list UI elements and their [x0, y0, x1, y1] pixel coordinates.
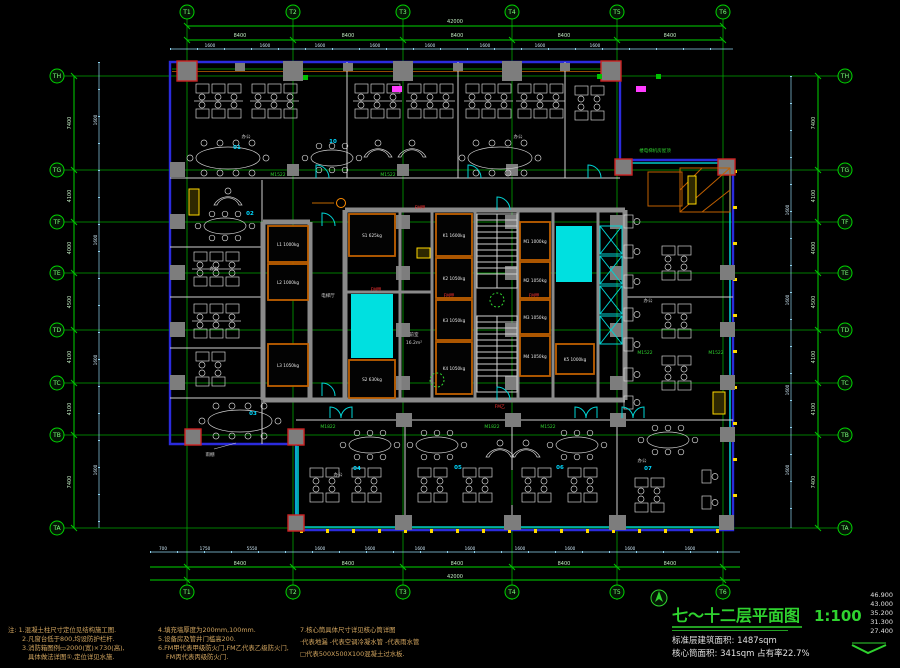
elevator-label: S2 630kg	[362, 377, 382, 382]
dim-total: 42000	[447, 574, 463, 580]
dim-win: 1600	[260, 43, 271, 48]
grid-label: TA	[52, 525, 61, 532]
office-label: 办公	[514, 133, 523, 140]
elevator-label: K1 1600kg	[443, 233, 466, 238]
elevation-value: 27.400	[870, 627, 893, 635]
dim-bay: 8400	[342, 33, 355, 39]
door-tag: M1522	[708, 350, 723, 356]
room-number: 06	[556, 465, 564, 471]
grid-label: T6	[718, 9, 727, 16]
machine-room-roof: 楼电梯机房屋顶	[639, 147, 730, 212]
dim-win: 1600	[785, 204, 790, 215]
grid-label: TB	[840, 432, 849, 439]
office-label: 办公	[210, 265, 219, 272]
elevator-label: S1 625kg	[362, 233, 382, 238]
dim-right: 4500	[811, 296, 817, 309]
dim-win: 1600	[785, 384, 790, 395]
elevator-label: M1 1000kg	[523, 239, 547, 244]
elevator-label: L2 1000kg	[277, 280, 299, 285]
dim-bay: 8400	[451, 33, 464, 39]
dim-win: 1600	[480, 43, 491, 48]
fire-hydrant-cabinet	[417, 248, 430, 258]
fire-door-label: FM乙	[495, 403, 506, 410]
note-line: 注: 1.混凝土柱尺寸定位见结构施工图.	[8, 625, 116, 634]
dim-bay: 8400	[342, 561, 355, 567]
cad-floor-plan: T1 T2 T3 T4 T5 T6 T1 T2 T3 T4 T5 T6 TH T…	[0, 0, 900, 668]
window-tag	[656, 74, 661, 79]
room-number: 02	[246, 211, 254, 217]
dim-right: 4100	[811, 190, 817, 203]
dimensions-left: 7400 4100 4000 4500 4100 4100 7400 1600 …	[67, 62, 99, 531]
dim-total: 42000	[447, 19, 463, 25]
office-label: 办公	[242, 133, 251, 140]
grid-label: T5	[612, 9, 621, 16]
note-line: FM丙代表丙级防火门.	[166, 652, 228, 661]
dim-left: 4100	[67, 403, 73, 416]
grid-label: TE	[52, 270, 61, 277]
dim-win: 1600	[93, 464, 98, 475]
dim-right: 4100	[811, 351, 817, 364]
elevation-value: 46.900	[870, 591, 893, 599]
elevator-label: K4 1050kg	[443, 366, 466, 371]
grid-label: T2	[288, 9, 297, 16]
dim-left: 4000	[67, 242, 73, 255]
office-label: 办公	[638, 457, 647, 464]
dim-win: 1600	[365, 546, 376, 551]
dim-seg: 5550	[247, 546, 258, 551]
dim-bay: 8400	[451, 561, 464, 567]
dim-win: 1600	[785, 464, 790, 475]
lobby-label: 电梯厅	[321, 292, 335, 299]
elevator-label: K5 1000kg	[564, 357, 587, 362]
dim-bay: 8400	[234, 561, 247, 567]
dim-win: 1600	[785, 294, 790, 305]
room-number: 03	[249, 411, 257, 417]
door-arc	[322, 383, 335, 396]
dim-win: 1600	[515, 546, 526, 551]
grid-label: TG	[840, 167, 850, 174]
door-arc	[322, 213, 335, 226]
room-number: 01	[233, 145, 241, 151]
door-tag: M1522	[380, 172, 395, 178]
grid-label: TB	[52, 432, 61, 439]
dim-bay: 8400	[664, 33, 677, 39]
note-line: 6.FM甲代表甲级防火门,FM乙代表乙级防火门,	[158, 643, 289, 652]
grid-label: TF	[840, 219, 849, 226]
note-line: 5.设备房及管井门槛高200.	[158, 634, 236, 643]
door-tag: M1522	[637, 350, 652, 356]
note-line: 4.填充墙厚度为200mm,100mm.	[158, 625, 256, 634]
elevator-label: L1 1000kg	[277, 242, 299, 247]
grid-label: T3	[398, 9, 407, 16]
dim-win: 1600	[590, 43, 601, 48]
area-line: 标准层建筑面积: 1487sqm	[672, 635, 777, 646]
door-tag: M1522	[270, 172, 285, 178]
grid-label: TF	[52, 219, 61, 226]
elevator-label: K2 1050kg	[443, 276, 466, 281]
vent-circle	[490, 293, 504, 307]
magenta-tag	[392, 86, 402, 92]
elevator-label: K3 1050kg	[443, 318, 466, 323]
grid-label: TC	[840, 380, 849, 387]
grid-label: TG	[52, 167, 62, 174]
area-line: 核心筒面积: 341sqm 占有率22.7%	[672, 648, 810, 659]
dimensions-top: 42000 8400 8400 8400 8400 8400 1600 1600…	[170, 19, 733, 49]
elevator-label: M2 1050kg	[523, 278, 547, 283]
elevation-value: 31.300	[870, 618, 893, 626]
note-line: 3.消防箱图例▭2000(宽)×730(高),	[22, 643, 125, 652]
door-tag: M1822	[320, 424, 335, 430]
dim-win: 1600	[415, 546, 426, 551]
conference-table	[187, 140, 269, 176]
front-room-label: 前室	[410, 331, 419, 338]
door-tag: M1822	[484, 424, 499, 430]
dim-win: 1600	[425, 43, 436, 48]
dim-seg: 1750	[200, 546, 211, 551]
notes: 注: 1.混凝土柱尺寸定位见结构施工图. 2.凡窗台低于800,均设防护栏杆. …	[8, 625, 419, 661]
note-line: ·代表地漏 -代表空调冷凝水管 -代表雨水管	[300, 637, 419, 646]
dim-bay: 8400	[558, 33, 571, 39]
dim-left: 4500	[67, 296, 73, 309]
elevator-label: M4 1050kg	[523, 354, 547, 359]
dim-win: 1600	[465, 546, 476, 551]
fire-hydrant-cabinet	[189, 189, 199, 215]
grid-bubbles-left: TH TG TF TE TD TC TB TA	[50, 69, 64, 535]
plan-canvas: T1 T2 T3 T4 T5 T6 T1 T2 T3 T4 T5 T6 TH T…	[0, 0, 900, 668]
fire-elevator-shaft	[351, 294, 393, 358]
room-number: 07	[644, 466, 652, 472]
grid-label: TH	[840, 73, 849, 80]
dim-right: 7400	[811, 476, 817, 489]
dim-bay: 8400	[664, 561, 677, 567]
dim-win: 1600	[93, 354, 98, 365]
grid-bubbles-bottom: T1 T2 T3 T4 T5 T6	[180, 585, 730, 599]
grid-label: T1	[182, 9, 191, 16]
window-tag	[303, 75, 308, 80]
grid-label: TD	[840, 327, 850, 334]
drawing-scale: 1:100	[814, 607, 862, 625]
grid-label: TA	[840, 525, 849, 532]
dim-right: 4100	[811, 403, 817, 416]
dim-win: 1600	[205, 43, 216, 48]
grid-label: T1	[182, 589, 191, 596]
office-label: 办公	[644, 297, 653, 304]
magenta-tag	[636, 86, 646, 92]
grid-label: TD	[52, 327, 62, 334]
dim-win: 1600	[535, 43, 546, 48]
room-number: 05	[454, 465, 462, 471]
grid-label: T4	[507, 9, 516, 16]
note-line: □代表500X500X100混凝土过水板.	[300, 649, 405, 658]
canopy-label: 雨棚	[206, 451, 215, 458]
dim-win: 1600	[93, 114, 98, 125]
dim-left: 7400	[67, 117, 73, 130]
dimensions-right: 7400 4100 4000 4500 4100 4100 7400 1600 …	[785, 73, 821, 531]
door-tag: M1522	[540, 424, 555, 430]
fire-hydrant-cabinet	[713, 392, 725, 414]
fire-door-label: FM甲	[444, 293, 454, 299]
dim-win: 1600	[93, 234, 98, 245]
elevation-value: 43.000	[870, 600, 893, 608]
grid-label: T3	[398, 589, 407, 596]
grid-label: TE	[840, 270, 849, 277]
detail-tag	[337, 199, 346, 208]
front-room-area: 16.2m²	[406, 340, 422, 346]
fire-door-label: FM甲	[529, 293, 539, 299]
title-block: 七～十二层平面图 1:100 标准层建筑面积: 1487sqm 核心筒面积: 3…	[651, 590, 893, 659]
window-tag	[597, 74, 602, 79]
dimensions-bottom: 700 1750 5550 1600 1600 1600 1600 1600 1…	[150, 546, 740, 583]
core: L1 1000kg L2 1000kg L3 1050kg S1 625kg S…	[263, 197, 625, 410]
grid-label: T5	[612, 589, 621, 596]
drawing-title: 七～十二层平面图	[672, 606, 800, 625]
dim-win: 1600	[370, 43, 381, 48]
check-mark	[852, 645, 886, 653]
dim-win: 1600	[315, 43, 326, 48]
dim-bay: 8400	[234, 33, 247, 39]
elevator-label: M3 1050kg	[523, 315, 547, 320]
grid-label: T6	[718, 589, 727, 596]
fire-door-label: FM甲	[415, 205, 425, 211]
note-line: 具体做法详图①,定位详见水施.	[28, 652, 114, 661]
fire-elevator-shaft	[556, 226, 592, 282]
dim-seg: 700	[159, 546, 167, 551]
office-label: 办公	[334, 471, 343, 478]
grid-bubbles-right: TH TG TF TE TD TC TB TA	[838, 69, 852, 535]
dim-bay: 8400	[558, 561, 571, 567]
note-line: 2.凡窗台低于800,均设防护栏杆.	[22, 634, 115, 643]
dim-right: 7400	[811, 117, 817, 130]
grid-label: TC	[52, 380, 61, 387]
elevator-label: L3 1050kg	[277, 363, 299, 368]
elevation-value: 35.200	[870, 609, 893, 617]
dim-win: 1600	[315, 546, 326, 551]
room-number: 04	[353, 466, 361, 472]
grid-label: TH	[52, 73, 61, 80]
grid-bubbles-top: T1 T2 T3 T4 T5 T6	[180, 5, 730, 19]
dim-win: 1600	[625, 546, 636, 551]
dim-right: 4000	[811, 242, 817, 255]
dim-win: 1600	[565, 546, 576, 551]
room-number: 10	[329, 139, 337, 145]
note-line: 7.核心筒具体尺寸详见核心筒详图	[300, 625, 396, 634]
grid-label: T2	[288, 589, 297, 596]
dim-left: 4100	[67, 351, 73, 364]
machine-roof-label: 楼电梯机房屋顶	[639, 147, 671, 154]
dim-left: 7400	[67, 476, 73, 489]
dim-left: 4100	[67, 190, 73, 203]
fire-door-label: FM甲	[371, 287, 381, 293]
dim-win: 1600	[685, 546, 696, 551]
grid-label: T4	[507, 589, 516, 596]
